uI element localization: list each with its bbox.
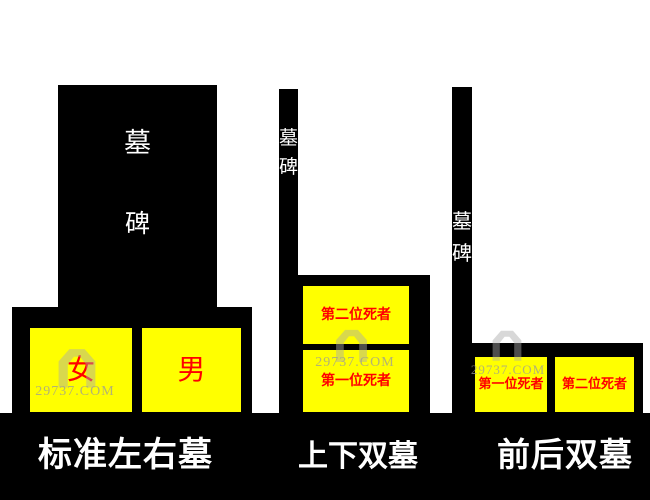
grave-layout-diagram: 标准左右墓 上下双墓 前后双墓 墓 碑 女 男 墓 碑 第二位死者 第一位死者 — [0, 0, 650, 500]
headstone-char-bei: 碑 — [279, 158, 298, 177]
watermark-text: 29737.COM — [310, 356, 400, 370]
plot-label-second-deceased: 第二位死者 — [321, 308, 391, 322]
watermark-arch-logo-icon — [54, 344, 100, 388]
watermark-text: 29737.COM — [468, 363, 548, 376]
watermark-arch-logo-icon — [489, 327, 525, 361]
headstone-char-mu: 墓 — [58, 130, 217, 157]
plot-label-first-deceased: 第一位死者 — [478, 378, 543, 391]
headstone: 墓 碑 — [58, 85, 217, 307]
plot-label-second-deceased: 第二位死者 — [562, 378, 627, 391]
headstone-char-mu: 墓 — [279, 129, 298, 148]
diagram-caption-standard-left-right: 标准左右墓 — [38, 438, 212, 474]
plot-label-first-deceased: 第一位死者 — [321, 374, 391, 388]
diagram-caption-front-back-double: 前后双墓 — [490, 438, 640, 473]
watermark-text: 29737.COM — [20, 385, 130, 399]
grave-plot-male: 男 — [142, 328, 241, 412]
headstone-char-bei: 碑 — [58, 211, 217, 236]
diagram-caption-top-bottom-double: 上下双墓 — [297, 441, 419, 473]
plot-label-male: 男 — [177, 356, 205, 384]
headstone-char-mu: 墓 — [452, 211, 472, 231]
grave-plot-second-deceased: 第二位死者 — [555, 357, 634, 412]
headstone-char-bei: 碑 — [452, 243, 472, 263]
